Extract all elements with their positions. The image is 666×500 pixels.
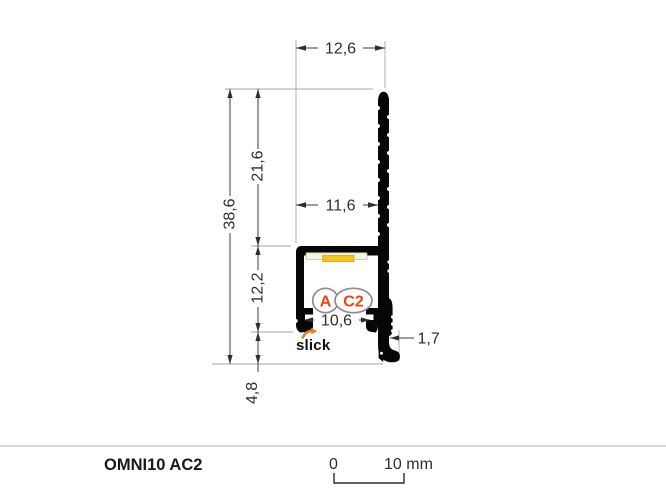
dim-label-total-height: 38,6 bbox=[222, 198, 239, 229]
dimension-foot-thickness: 1,7 bbox=[390, 331, 440, 348]
dim-label-top-width: 12,6 bbox=[325, 41, 356, 58]
dimension-channel-height: 12,2 bbox=[250, 246, 267, 332]
dim-label-foot-thickness: 1,7 bbox=[418, 331, 440, 348]
extension-lines bbox=[212, 40, 399, 364]
dim-label-upper-height: 21,6 bbox=[250, 150, 267, 181]
profile-drawing-page: 12,6 38,6 21,6 12,2 bbox=[0, 0, 666, 500]
dim-label-mid-width: 11,6 bbox=[326, 198, 356, 215]
footer-divider bbox=[0, 445, 666, 447]
variant-badges: A C2 bbox=[313, 288, 372, 312]
badge-a-label: A bbox=[320, 293, 332, 310]
brand-logo-text: slick bbox=[296, 337, 331, 354]
dim-label-opening-width: 10,6 bbox=[321, 313, 352, 330]
dimension-opening-width: 10,6 bbox=[304, 313, 370, 330]
dimension-upper-height: 21,6 bbox=[250, 89, 267, 246]
profile-technical-drawing: 12,6 38,6 21,6 12,2 bbox=[0, 0, 666, 446]
dimension-top-width: 12,6 bbox=[296, 41, 385, 58]
dim-label-foot-height: 4,8 bbox=[244, 382, 261, 404]
dimension-total-height: 38,6 bbox=[222, 89, 239, 364]
badge-c2-label: C2 bbox=[343, 293, 364, 310]
dim-label-channel-height: 12,2 bbox=[250, 272, 267, 303]
scale-bar bbox=[330, 471, 410, 487]
brand-swoosh-arrowhead-icon bbox=[311, 328, 317, 335]
led-strip bbox=[306, 253, 367, 262]
product-name: OMNI10 AC2 bbox=[104, 456, 202, 475]
dimension-mid-width: 11,6 bbox=[296, 198, 378, 215]
led-emitter bbox=[323, 255, 355, 261]
dimension-foot-height: 4,8 bbox=[244, 332, 261, 404]
